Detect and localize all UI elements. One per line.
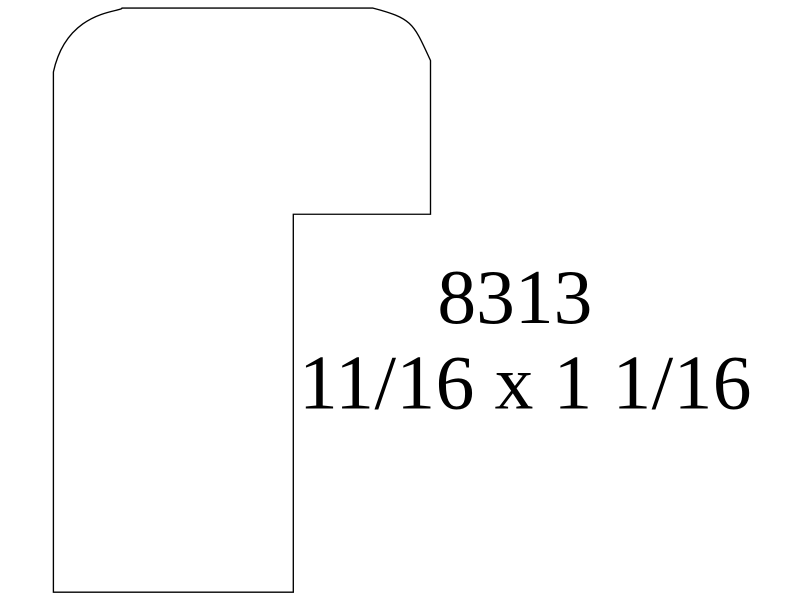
svg-text:8313: 8313 <box>437 254 592 340</box>
svg-text:11/16 x 1 1/16: 11/16 x 1 1/16 <box>299 340 752 426</box>
